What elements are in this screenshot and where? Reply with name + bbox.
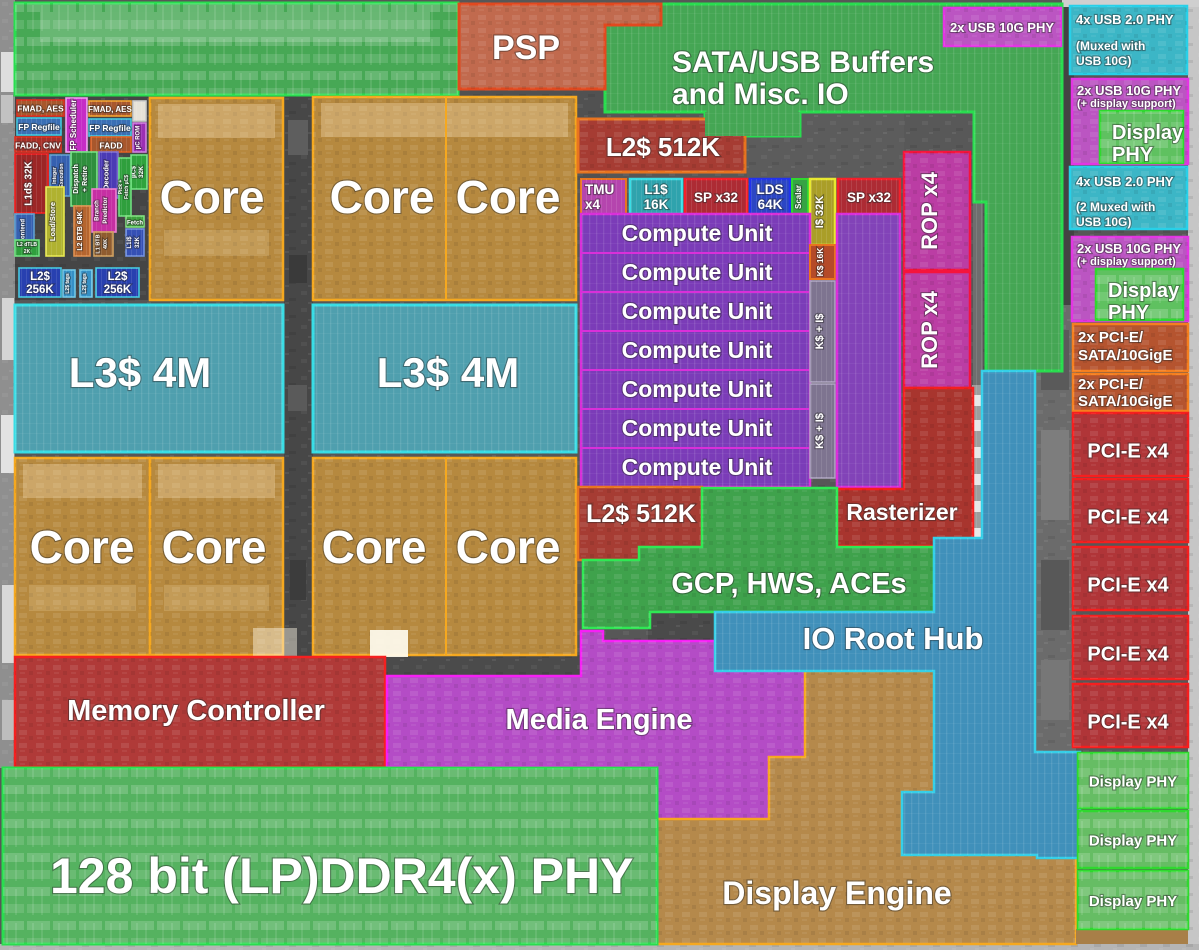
svg-text:256K: 256K: [26, 284, 54, 296]
svg-text:(+ display support): (+ display support): [1077, 98, 1176, 110]
svg-text:PHY: PHY: [1112, 144, 1154, 166]
svg-text:64K: 64K: [758, 197, 783, 212]
svg-text:4x USB 2.0 PHY: 4x USB 2.0 PHY: [1076, 12, 1174, 27]
svg-text:PSP: PSP: [492, 29, 560, 67]
svg-text:L2$: L2$: [30, 271, 50, 283]
svg-text:x4: x4: [585, 197, 601, 212]
svg-text:Core: Core: [330, 171, 435, 223]
svg-text:and Misc. IO: and Misc. IO: [672, 78, 849, 111]
svg-text:Display PHY: Display PHY: [1089, 774, 1177, 791]
svg-text:Compute Unit: Compute Unit: [622, 376, 773, 402]
svg-text:I$ 32K: I$ 32K: [814, 196, 826, 228]
svg-text:L1 BTB: L1 BTB: [96, 234, 102, 253]
svg-text:SATA/10GigE: SATA/10GigE: [1078, 393, 1172, 410]
svg-text:L2$: L2$: [108, 271, 128, 283]
svg-text:(Muxed with: (Muxed with: [1076, 39, 1145, 53]
svg-text:+ Retire: + Retire: [82, 166, 89, 192]
svg-text:FP Regfile: FP Regfile: [89, 123, 131, 133]
svg-text:L2 BTB 64K: L2 BTB 64K: [77, 211, 84, 250]
svg-text:40K: 40K: [103, 239, 109, 249]
svg-text:Execution: Execution: [59, 164, 65, 188]
svg-text:FMAD, AES: FMAD, AES: [17, 104, 64, 114]
svg-text:2x USB 10G PHY: 2x USB 10G PHY: [1077, 83, 1181, 98]
svg-text:16K: 16K: [644, 197, 669, 212]
svg-text:Core: Core: [160, 171, 265, 223]
svg-text:SATA/USB Buffers: SATA/USB Buffers: [672, 46, 934, 79]
svg-text:FP Scheduler: FP Scheduler: [69, 100, 78, 151]
svg-text:PCI-E x4: PCI-E x4: [1087, 507, 1169, 529]
svg-text:LDS: LDS: [757, 182, 784, 197]
svg-text:L1$: L1$: [644, 182, 668, 197]
svg-text:ROP x4: ROP x4: [917, 290, 942, 369]
svg-text:Media Engine: Media Engine: [506, 704, 693, 736]
svg-text:L1d$ 32K: L1d$ 32K: [24, 160, 35, 205]
svg-text:TMU: TMU: [585, 182, 614, 197]
svg-text:Core: Core: [162, 521, 267, 573]
svg-text:FMAD, AES: FMAD, AES: [88, 105, 132, 114]
svg-text:Core: Core: [456, 171, 561, 223]
svg-text:K$ 16K: K$ 16K: [815, 247, 825, 277]
svg-text:Core: Core: [456, 521, 561, 573]
svg-text:L2 dTLB: L2 dTLB: [17, 242, 37, 248]
svg-text:Compute Unit: Compute Unit: [622, 337, 773, 363]
svg-text:ROP x4: ROP x4: [917, 171, 942, 250]
svg-text:32K: 32K: [138, 166, 145, 178]
svg-text:128 bit (LP)DDR4(x) PHY: 128 bit (LP)DDR4(x) PHY: [50, 848, 633, 904]
svg-text:L2$ tags: L2$ tags: [82, 273, 88, 294]
svg-text:Compute Unit: Compute Unit: [622, 298, 773, 324]
svg-text:Scalar: Scalar: [794, 185, 803, 209]
svg-text:Integer: Integer: [52, 167, 58, 184]
svg-text:Compute Unit: Compute Unit: [622, 415, 773, 441]
svg-text:Predictor: Predictor: [103, 197, 109, 224]
svg-text:Compute Unit: Compute Unit: [622, 259, 773, 285]
svg-text:32K: 32K: [135, 236, 141, 248]
svg-text:Load/Store: Load/Store: [48, 202, 57, 241]
svg-text:2x USB 10G PHY: 2x USB 10G PHY: [1077, 241, 1181, 256]
svg-text:PCI-E x4: PCI-E x4: [1087, 712, 1169, 734]
svg-text:L2$ 512K: L2$ 512K: [586, 500, 696, 528]
svg-text:Core: Core: [322, 521, 427, 573]
svg-text:PHY: PHY: [1108, 302, 1150, 324]
svg-text:Branch: Branch: [95, 200, 101, 221]
svg-text:Decoder: Decoder: [102, 160, 111, 190]
svg-text:L2$ 512K: L2$ 512K: [606, 132, 720, 162]
svg-text:Compute Unit: Compute Unit: [622, 454, 773, 480]
svg-text:Display: Display: [1112, 122, 1184, 144]
svg-text:K$ + I$: K$ + I$: [814, 314, 826, 350]
svg-text:L3$ 4M: L3$ 4M: [377, 349, 519, 396]
svg-text:K$ + I$: K$ + I$: [814, 413, 826, 449]
svg-text:Fetch µC$: Fetch µC$: [124, 175, 130, 199]
svg-text:µC ROM: µC ROM: [136, 126, 142, 149]
svg-text:PCI-E x4: PCI-E x4: [1087, 575, 1169, 597]
svg-text:Display PHY: Display PHY: [1089, 893, 1177, 910]
svg-text:2x USB 10G PHY: 2x USB 10G PHY: [950, 20, 1054, 35]
svg-text:USB 10G): USB 10G): [1076, 215, 1131, 229]
svg-text:L1i$: L1i$: [127, 236, 133, 249]
svg-text:Memory Controller: Memory Controller: [67, 695, 325, 727]
svg-text:PCI-E x4: PCI-E x4: [1087, 644, 1169, 666]
svg-text:(2 Muxed with: (2 Muxed with: [1076, 200, 1155, 214]
svg-text:Display Engine: Display Engine: [722, 875, 951, 911]
svg-text:(+ display support): (+ display support): [1077, 256, 1176, 268]
svg-text:Fetch: Fetch: [127, 221, 143, 227]
svg-text:GCP, HWS, ACEs: GCP, HWS, ACEs: [671, 568, 906, 600]
svg-text:PCI-E x4: PCI-E x4: [1087, 441, 1169, 463]
svg-text:FP Regfile: FP Regfile: [18, 122, 60, 132]
svg-text:FADD: FADD: [99, 141, 122, 151]
svg-text:SP x32: SP x32: [694, 190, 738, 205]
svg-text:Rasterizer: Rasterizer: [846, 499, 957, 525]
svg-text:Display: Display: [1108, 280, 1180, 302]
svg-text:2K: 2K: [24, 249, 31, 255]
svg-text:4x USB 2.0 PHY: 4x USB 2.0 PHY: [1076, 174, 1174, 189]
svg-text:SP x32: SP x32: [847, 190, 891, 205]
svg-text:Core: Core: [30, 521, 135, 573]
svg-text:Compute Unit: Compute Unit: [622, 220, 773, 246]
svg-text:Dispatch: Dispatch: [73, 164, 80, 194]
svg-text:L3$ 4M: L3$ 4M: [69, 349, 211, 396]
svg-text:FADD, CNV: FADD, CNV: [15, 141, 61, 151]
svg-text:Display PHY: Display PHY: [1089, 833, 1177, 850]
svg-text:2x PCI-E/: 2x PCI-E/: [1078, 329, 1144, 346]
svg-text:256K: 256K: [104, 284, 132, 296]
svg-text:IO Root Hub: IO Root Hub: [803, 621, 984, 656]
svg-text:L2$ tags: L2$ tags: [65, 273, 71, 294]
svg-text:2x PCI-E/: 2x PCI-E/: [1078, 376, 1144, 393]
svg-text:USB 10G): USB 10G): [1076, 54, 1131, 68]
svg-text:SATA/10GigE: SATA/10GigE: [1078, 347, 1172, 364]
